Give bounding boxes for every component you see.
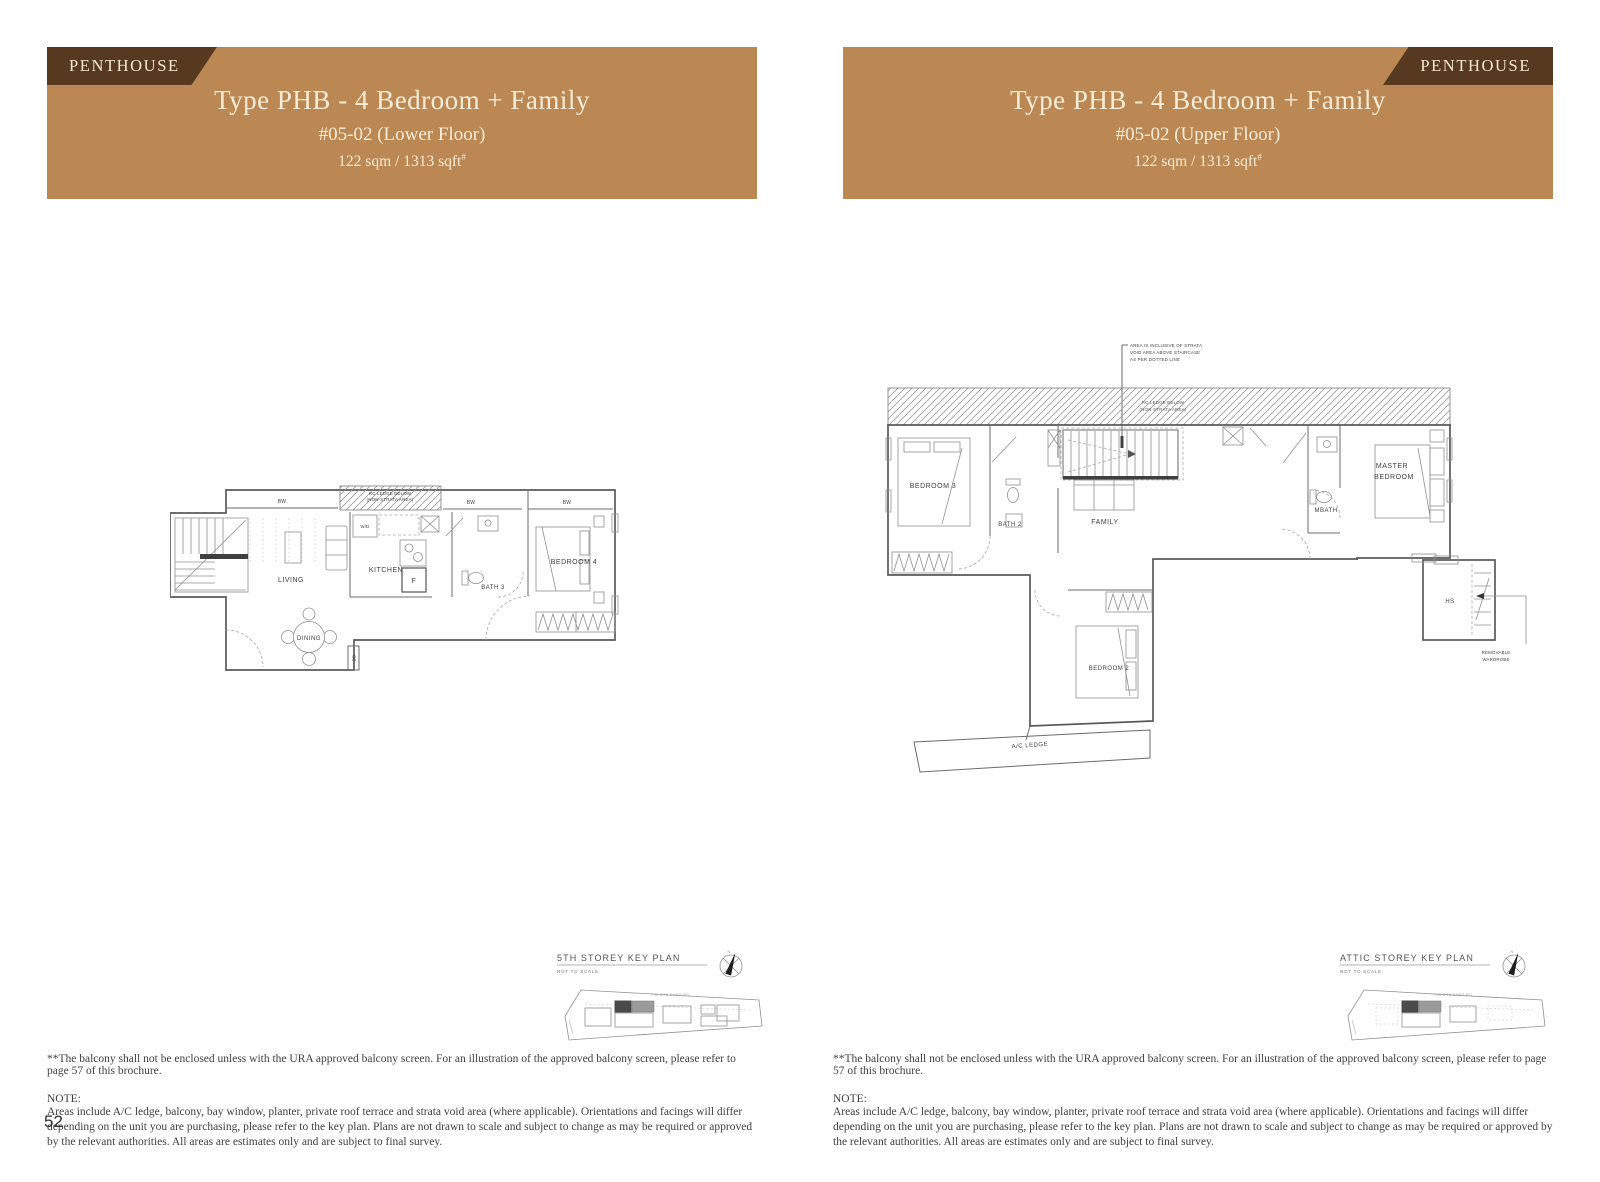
- toilet: [1006, 479, 1020, 503]
- unit-outline: [170, 490, 615, 670]
- rc-ledge-hatch: RC LEDGE BELOW (NON-STRATA AREA): [888, 388, 1450, 425]
- svg-text:F: F: [412, 578, 417, 585]
- dining-label: DINING: [297, 636, 321, 642]
- rc-ledge-hatch: RC LEDGE BELOW (NON-STRATA AREA): [340, 486, 441, 510]
- removable-label-1: REMOVABLE: [1482, 650, 1511, 655]
- family-area: FAMILY: [1074, 480, 1310, 559]
- page-number: 52: [44, 1112, 63, 1132]
- master-bedroom: MASTER BEDROOM: [1374, 430, 1444, 562]
- ac-ledge-label: A/C LEDGE: [1012, 742, 1049, 751]
- penthouse-tag: PENTHOUSE: [47, 47, 217, 85]
- north-compass-icon: N: [720, 950, 742, 977]
- unit-area: 122 sqm / 1313 sqft#: [843, 152, 1553, 171]
- master-bath: MBATH: [1283, 425, 1340, 533]
- footnotes: **The balcony shall not be enclosed unle…: [47, 1053, 760, 1151]
- svg-text:W/D: W/D: [360, 524, 369, 529]
- svg-text:VOID AREA ABOVE STAIRCASE: VOID AREA ABOVE STAIRCASE: [1130, 350, 1200, 355]
- unit-number: #05-02 (Lower Floor): [47, 124, 757, 146]
- entry-door-arc: [486, 596, 530, 640]
- key-plan-title: ATTIC STOREY KEY PLAN: [1340, 953, 1474, 963]
- upper-floor-banner: PENTHOUSE Type PHB - 4 Bedroom + Family …: [843, 47, 1553, 199]
- rc-ledge-label-1: RC LEDGE BELOW: [369, 491, 412, 496]
- key-plan-subtitle: NOT TO SCALE: [1340, 969, 1382, 974]
- rc-ledge-label-2: (NON-STRATA AREA): [1140, 407, 1187, 412]
- attic-key-plan: ATTIC STOREY KEY PLAN NOT TO SCALE N YIO…: [1338, 950, 1553, 1050]
- bw-label-2: BW: [467, 500, 476, 506]
- ac-shaft: [1223, 427, 1266, 446]
- north-label: N: [1511, 950, 1514, 954]
- penthouse-tag-label: PENTHOUSE: [69, 56, 180, 76]
- note-body: Areas include A/C ledge, balcony, bay wi…: [47, 1105, 760, 1151]
- bedroom4-label: BEDROOM 4: [551, 559, 598, 566]
- bw-label-3: BW: [563, 500, 572, 506]
- removable-wardrobe-annotation: REMOVABLE WARDROBE: [1476, 593, 1526, 662]
- family-door-arc: [1280, 529, 1310, 559]
- bed: [898, 438, 970, 526]
- balcony-footnote: **The balcony shall not be enclosed unle…: [47, 1053, 760, 1077]
- shower-screen: [1283, 433, 1306, 463]
- bedroom-2: BEDROOM 2: [1035, 590, 1153, 698]
- stove: [400, 540, 426, 566]
- bw-label-1: BW: [278, 499, 287, 505]
- bedroom2-label: BEDROOM 2: [1089, 666, 1130, 672]
- toilet: [1310, 490, 1332, 504]
- unit-area: 122 sqm / 1313 sqft#: [47, 152, 757, 171]
- shower-screen: [992, 437, 1016, 462]
- unit-area-footnote-mark: #: [1257, 152, 1262, 162]
- footnotes: **The balcony shall not be enclosed unle…: [833, 1053, 1555, 1151]
- living-door-arc: [226, 630, 263, 667]
- wardrobe: [892, 552, 952, 573]
- coffee-table: [285, 532, 301, 563]
- bath2-label: BATH 2: [998, 522, 1022, 528]
- living-room: LIVING: [250, 518, 347, 584]
- storey-key-plan: 5TH STOREY KEY PLAN NOT TO SCALE N: [555, 950, 770, 1050]
- svg-text:AREA IS INCLUSIVE OF STRATA: AREA IS INCLUSIVE OF STRATA: [1130, 343, 1202, 348]
- key-plan-subtitle: NOT TO SCALE: [557, 969, 599, 974]
- north-compass-icon: N: [1503, 950, 1525, 977]
- road-label: YIO CHU KANG RD: [651, 993, 689, 997]
- sofa: [326, 526, 347, 570]
- kitchen: W/D F KITCHEN: [350, 512, 439, 597]
- bath-3: BATH 3: [446, 512, 523, 597]
- plan-type-title: Type PHB - 4 Bedroom + Family: [47, 85, 757, 116]
- svg-text:AS PER DOTTED LINE: AS PER DOTTED LINE: [1130, 357, 1180, 362]
- lower-floor-panel: PENTHOUSE Type PHB - 4 Bedroom + Family …: [47, 47, 760, 1182]
- kitchen-label: KITCHEN: [369, 567, 403, 574]
- hs-label: HS: [1445, 599, 1454, 605]
- site-plan: YIO CHU KANG RD: [565, 990, 762, 1040]
- mbath-label: MBATH: [1314, 508, 1337, 514]
- rc-ledge-label-1: RC LEDGE BELOW: [1142, 400, 1185, 405]
- bedroom2-door-arc: [1035, 590, 1061, 616]
- penthouse-tag: PENTHOUSE: [1383, 47, 1553, 85]
- family-label: FAMILY: [1091, 519, 1118, 526]
- plan-type-title: Type PHB - 4 Bedroom + Family: [843, 85, 1553, 116]
- master-label-2: BEDROOM: [1374, 474, 1414, 481]
- note-body: Areas include A/C ledge, balcony, bay wi…: [833, 1105, 1555, 1151]
- vanity-sink: [478, 516, 498, 531]
- unit-area-footnote-mark: #: [461, 152, 466, 162]
- bedroom3-door-arc: [957, 536, 990, 569]
- rc-ledge-label-2: (NON-STRATA AREA): [367, 497, 414, 502]
- sink: [1317, 437, 1337, 452]
- db-label: DB: [352, 655, 357, 662]
- unit-area-value: 122 sqm / 1313 sqft: [338, 153, 461, 170]
- sofa: [1074, 480, 1134, 510]
- master-label-1: MASTER: [1376, 463, 1408, 470]
- dining-area: DINING: [282, 608, 337, 666]
- upper-floor-plan-drawing: AREA IS INCLUSIVE OF STRATA VOID AREA AB…: [878, 338, 1558, 778]
- bedroom-3: BEDROOM 3: [892, 425, 990, 573]
- bath3-label: BATH 3: [481, 585, 505, 591]
- fridge: F: [402, 568, 426, 592]
- bedroom3-label: BEDROOM 3: [910, 483, 957, 490]
- penthouse-tag-label: PENTHOUSE: [1420, 56, 1531, 76]
- balcony-footnote: **The balcony shall not be enclosed unle…: [833, 1053, 1555, 1077]
- unit-outline: [888, 425, 1495, 726]
- site-plan: YIO CHU KANG RD: [1348, 990, 1545, 1040]
- living-label: LIVING: [278, 577, 304, 584]
- north-label: N: [728, 950, 731, 954]
- lower-floor-banner: PENTHOUSE Type PHB - 4 Bedroom + Family …: [47, 47, 757, 199]
- toilet: [462, 571, 484, 585]
- road-label: YIO CHU KANG RD: [1434, 993, 1472, 997]
- kitchen-sink: [421, 516, 439, 532]
- bed: [1076, 626, 1138, 698]
- key-plan-title: 5TH STOREY KEY PLAN: [557, 953, 680, 963]
- ac-ledge: A/C LEDGE: [914, 726, 1150, 772]
- note-title: NOTE:: [47, 1093, 760, 1105]
- wardrobe: [536, 612, 615, 632]
- household-shelter-outline: [1423, 560, 1495, 640]
- wardrobe: [1106, 592, 1152, 612]
- washer-dryer: W/D: [353, 515, 377, 537]
- removable-label-2: WARDROBE: [1482, 657, 1509, 662]
- lower-floor-plan-drawing: RC LEDGE BELOW (NON-STRATA AREA): [170, 476, 642, 684]
- staircase: [175, 518, 248, 592]
- unit-area-value: 122 sqm / 1313 sqft: [1134, 153, 1257, 170]
- bedroom-4: BEDROOM 4: [528, 490, 615, 632]
- entry-door-leaf: [446, 518, 463, 536]
- note-title: NOTE:: [833, 1093, 1555, 1105]
- unit-number: #05-02 (Upper Floor): [843, 124, 1553, 146]
- kitchen-counter: [379, 515, 419, 535]
- upper-floor-panel: PENTHOUSE Type PHB - 4 Bedroom + Family …: [833, 47, 1555, 1182]
